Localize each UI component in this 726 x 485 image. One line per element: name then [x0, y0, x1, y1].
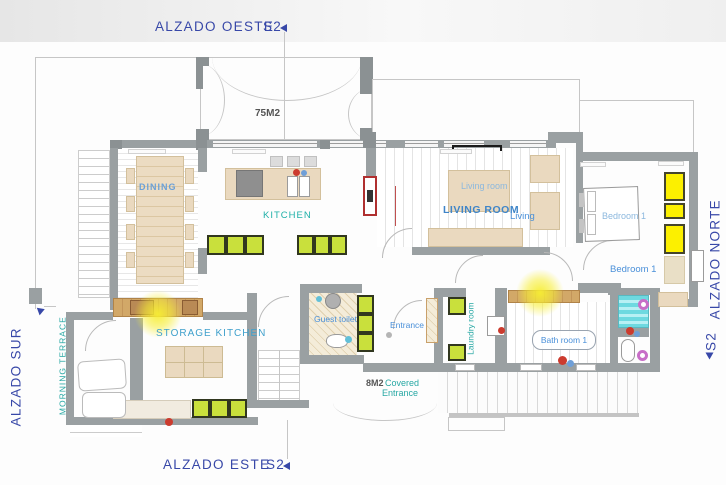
- wall: [247, 400, 309, 408]
- drain: [637, 350, 648, 361]
- cabinet-unit: [297, 235, 314, 255]
- dimension-tag: [658, 161, 684, 166]
- column: [196, 57, 203, 89]
- hot-water-point: [558, 356, 567, 365]
- kitchen-cabinet-row: [297, 235, 347, 255]
- room-label-guest-toilet: Guest toilet: [314, 315, 357, 324]
- entry-bench: [426, 298, 438, 343]
- fireplace-flue: [367, 190, 373, 202]
- room-label-covered-2: Entrance: [382, 389, 418, 399]
- sink: [299, 176, 310, 197]
- water-point: [316, 296, 322, 302]
- hot-water-point: [626, 327, 634, 335]
- pendant-light: [287, 156, 300, 167]
- bathtub: [621, 339, 635, 362]
- chair: [126, 196, 135, 212]
- rear-deck: [438, 372, 640, 413]
- room-label-bedroom: Bedroom 1: [610, 265, 656, 275]
- sink: [287, 176, 298, 197]
- dimension-tag: [232, 149, 266, 154]
- room-label-living-caption: Living room: [461, 182, 508, 192]
- table-cell: [185, 347, 203, 362]
- dimension-line: [395, 186, 396, 226]
- table-cell: [185, 363, 203, 378]
- cabinet-unit: [357, 295, 374, 314]
- cabinet-unit: [210, 399, 228, 418]
- column: [363, 132, 376, 148]
- elevation-label-west: ALZADO OESTE: [155, 20, 274, 35]
- bathroom-label-bubble: Bath room 1: [532, 330, 596, 350]
- scan-shading: [0, 0, 726, 42]
- nightstand: [579, 219, 584, 233]
- cold-water-point: [567, 360, 574, 367]
- table-cell: [166, 347, 184, 362]
- door-leaf[interactable]: [520, 364, 542, 371]
- table-cell: [204, 347, 222, 362]
- section-arrow-icon: [280, 24, 287, 32]
- wall: [300, 284, 362, 293]
- wall: [608, 288, 660, 295]
- window: [510, 141, 546, 147]
- deck-step: [448, 417, 505, 431]
- chair: [185, 224, 194, 240]
- vanity: [658, 292, 688, 307]
- lounge-chair: [77, 358, 127, 391]
- window: [405, 141, 438, 147]
- wall: [198, 248, 207, 274]
- cooktop: [236, 170, 263, 197]
- wall: [610, 288, 618, 368]
- cold-water-point: [634, 331, 640, 337]
- round-sink: [325, 293, 341, 309]
- porch-arc: [333, 403, 437, 421]
- area-label-roof-terrace: 75M2: [255, 108, 280, 119]
- storage-table: [165, 346, 223, 378]
- dining-table: [136, 156, 184, 284]
- boundary-post: [29, 288, 42, 304]
- appliance: [182, 300, 198, 315]
- dimension-tag: [580, 162, 606, 167]
- wall: [412, 247, 550, 255]
- storage-cabinet-row: [192, 399, 247, 418]
- floor-drain: [386, 332, 392, 338]
- wall: [247, 293, 257, 408]
- cabinet-unit: [192, 399, 210, 418]
- pendant-light: [304, 156, 317, 167]
- wall: [548, 132, 583, 143]
- chair: [185, 252, 194, 268]
- pillow: [587, 191, 596, 212]
- column: [320, 140, 330, 149]
- chair: [126, 224, 135, 240]
- hot-water-point: [498, 327, 505, 334]
- room-label-dining: DINING: [139, 183, 177, 193]
- room-label-morning-terrace: MORNING TERRACE: [58, 316, 67, 416]
- ceiling-light-glow: [516, 269, 564, 317]
- cabinet-unit: [226, 235, 245, 255]
- door-leaf[interactable]: [455, 364, 475, 371]
- terrace-steps: [70, 425, 142, 437]
- elevation-label-north: ALZADO NORTE: [709, 219, 724, 319]
- wardrobe-unit: [664, 203, 685, 219]
- cabinet-unit: [314, 235, 331, 255]
- cabinet-unit: [448, 344, 466, 361]
- room-label-bathroom: Bath room 1: [541, 335, 587, 345]
- section-arrow-icon: [706, 353, 714, 360]
- section-arrow-icon: [283, 462, 290, 470]
- cabinet-unit: [357, 333, 374, 352]
- cold-water-point: [301, 170, 307, 176]
- cabinet-unit: [207, 235, 226, 255]
- cabinet-unit: [357, 314, 374, 333]
- hot-water-point: [293, 169, 300, 176]
- area-label-covered-entrance: 8M2: [366, 379, 384, 389]
- wall: [198, 148, 207, 172]
- site-boundary-line: [580, 100, 694, 101]
- wardrobe-unit: [664, 224, 685, 254]
- pillow: [587, 214, 596, 235]
- chair: [126, 168, 135, 184]
- section-cut-line: [284, 32, 285, 140]
- nightstand: [579, 193, 584, 207]
- table-cell: [166, 363, 184, 378]
- room-label-kitchen: KITCHEN: [263, 211, 312, 221]
- dimension-tag: [128, 149, 166, 154]
- room-label-living-short: Living: [510, 212, 535, 222]
- cabinet-unit: [229, 399, 247, 418]
- window: [330, 141, 386, 147]
- elevation-label-south: ALZADO SUR: [10, 336, 25, 426]
- dresser: [664, 256, 685, 284]
- side-stairs: [78, 150, 110, 298]
- room-label-laundry: Laundry room: [466, 301, 475, 357]
- hall-cabinet-stack: [357, 295, 374, 352]
- wardrobe-unit: [664, 172, 685, 201]
- room-label-living: LIVING ROOM: [443, 205, 519, 217]
- marker-line: [44, 306, 56, 307]
- door-leaf[interactable]: [576, 364, 596, 371]
- sofa: [428, 228, 523, 247]
- dimension-tag: [440, 149, 472, 154]
- water-point: [345, 336, 352, 343]
- site-boundary-line: [35, 57, 36, 309]
- table-cell: [204, 363, 222, 378]
- pendant-light: [270, 156, 283, 167]
- room-label-storage-kitchen: STORAGE KITCHEN: [156, 328, 266, 339]
- elevation-label-east: ALZADO ESTE: [163, 458, 270, 473]
- front-terrace-outline: [372, 79, 580, 140]
- drain: [638, 299, 649, 310]
- chair: [185, 196, 194, 212]
- cabinet-unit: [245, 235, 264, 255]
- chair: [185, 168, 194, 184]
- cabinet: [530, 155, 560, 183]
- wall: [110, 148, 118, 310]
- wall: [203, 312, 247, 320]
- room-label-entrance: Entrance: [390, 321, 424, 330]
- cabinet-unit: [330, 235, 347, 255]
- section-marker-north: S2: [705, 329, 720, 353]
- floor-plan-canvas: ALZADO OESTE S2 ALZADO ESTE S2 ALZADO SU…: [0, 0, 726, 485]
- wall: [300, 355, 364, 364]
- wall: [689, 152, 698, 307]
- room-label-bedroom-caption: Bedroom 1: [602, 212, 646, 222]
- cabinet-unit: [448, 297, 466, 315]
- chair: [126, 252, 135, 268]
- section-cut-line: [287, 420, 288, 459]
- stair-rail: [279, 350, 280, 402]
- window: [213, 141, 317, 147]
- wall: [300, 284, 309, 364]
- lounge-chair: [82, 392, 126, 418]
- window: [691, 250, 704, 282]
- site-boundary-line: [35, 57, 201, 58]
- hot-water-point: [165, 418, 173, 426]
- kitchen-cabinet-row: [207, 235, 264, 255]
- wall: [578, 152, 698, 161]
